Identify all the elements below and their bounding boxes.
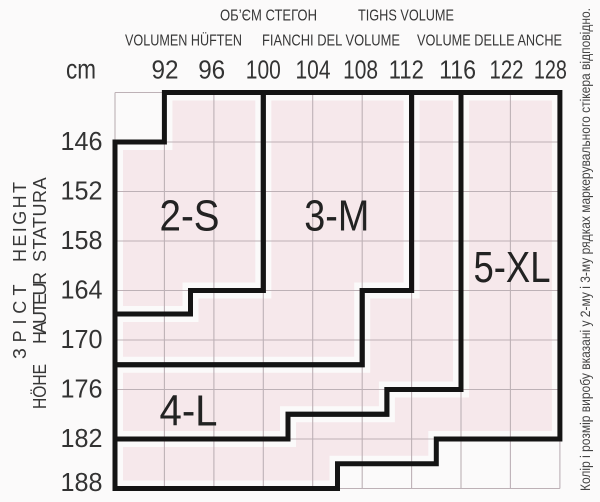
svg-text:HAUTEUR: HAUTEUR	[30, 272, 50, 344]
svg-text:128: 128	[534, 55, 567, 85]
svg-text:170: 170	[61, 324, 103, 354]
svg-text:164: 164	[61, 275, 103, 305]
svg-text:ОБ’ЄМ СТЕГОН: ОБ’ЄМ СТЕГОН	[220, 8, 317, 25]
svg-text:3-M: 3-M	[304, 192, 369, 241]
svg-text:5-XL: 5-XL	[474, 243, 551, 292]
svg-text:182: 182	[61, 423, 103, 453]
svg-text:VOLUME DELLE ANCHE: VOLUME DELLE ANCHE	[417, 33, 562, 50]
svg-text:146: 146	[61, 126, 103, 156]
svg-text:HÖHE: HÖHE	[30, 364, 50, 409]
svg-text:112: 112	[389, 55, 424, 85]
svg-text:FIANCHI DEL VOLUME: FIANCHI DEL VOLUME	[262, 33, 400, 50]
svg-text:cm: cm	[66, 54, 96, 85]
svg-text:108: 108	[343, 55, 378, 85]
svg-text:188: 188	[61, 467, 103, 497]
svg-text:100: 100	[246, 55, 281, 85]
svg-text:4-L: 4-L	[160, 387, 218, 436]
svg-text:TIGHS VOLUME: TIGHS VOLUME	[358, 8, 454, 25]
svg-text:92: 92	[152, 55, 179, 85]
svg-text:176: 176	[61, 374, 103, 404]
svg-text:VOLUMEN HÜFTEN: VOLUMEN HÜFTEN	[125, 32, 242, 50]
svg-text:104: 104	[296, 55, 331, 85]
svg-text:Колір і розмір виробу вказані: Колір і розмір виробу вказані у 2-му і 3…	[577, 8, 593, 491]
svg-text:2-S: 2-S	[160, 192, 220, 241]
svg-text:152: 152	[61, 176, 103, 206]
svg-text:158: 158	[61, 225, 103, 255]
svg-text:96: 96	[198, 55, 225, 85]
svg-text:116: 116	[439, 55, 476, 85]
svg-text:STATURA: STATURA	[30, 177, 50, 262]
svg-text:122: 122	[490, 55, 524, 85]
